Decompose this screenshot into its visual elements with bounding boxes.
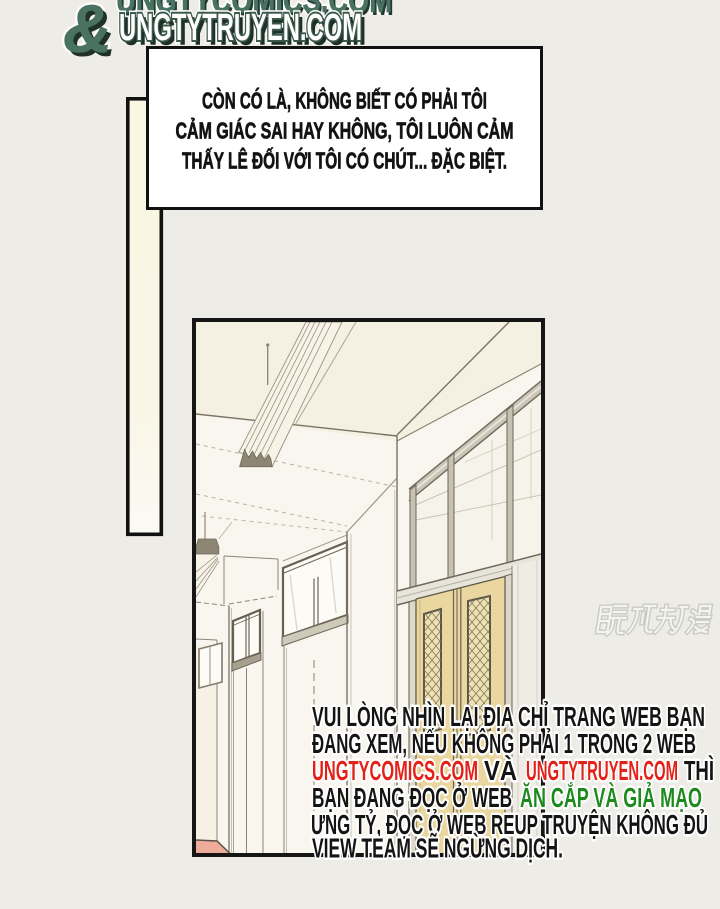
- svg-text:THẤY LÊ ĐỐI VỚI TÔI CÓ CHÚT...: THẤY LÊ ĐỐI VỚI TÔI CÓ CHÚT... ĐẶC BIỆT.: [182, 147, 507, 174]
- svg-text:CẢM GIÁC SAI HAY KHÔNG, TÔI LU: CẢM GIÁC SAI HAY KHÔNG, TÔI LUÔN CẢM: [176, 116, 514, 144]
- svg-text:&: &: [63, 0, 112, 67]
- svg-text:VIEW TEAM SẼ NGỪNG DỊCH.: VIEW TEAM SẼ NGỪNG DỊCH.: [312, 833, 563, 864]
- svg-text:CÒN CÓ LÀ, KHÔNG BIẾT CÓ PHẢI: CÒN CÓ LÀ, KHÔNG BIẾT CÓ PHẢI TÔI: [202, 86, 487, 114]
- svg-text:UNGTYTRUYEN.COM: UNGTYTRUYEN.COM: [119, 7, 362, 49]
